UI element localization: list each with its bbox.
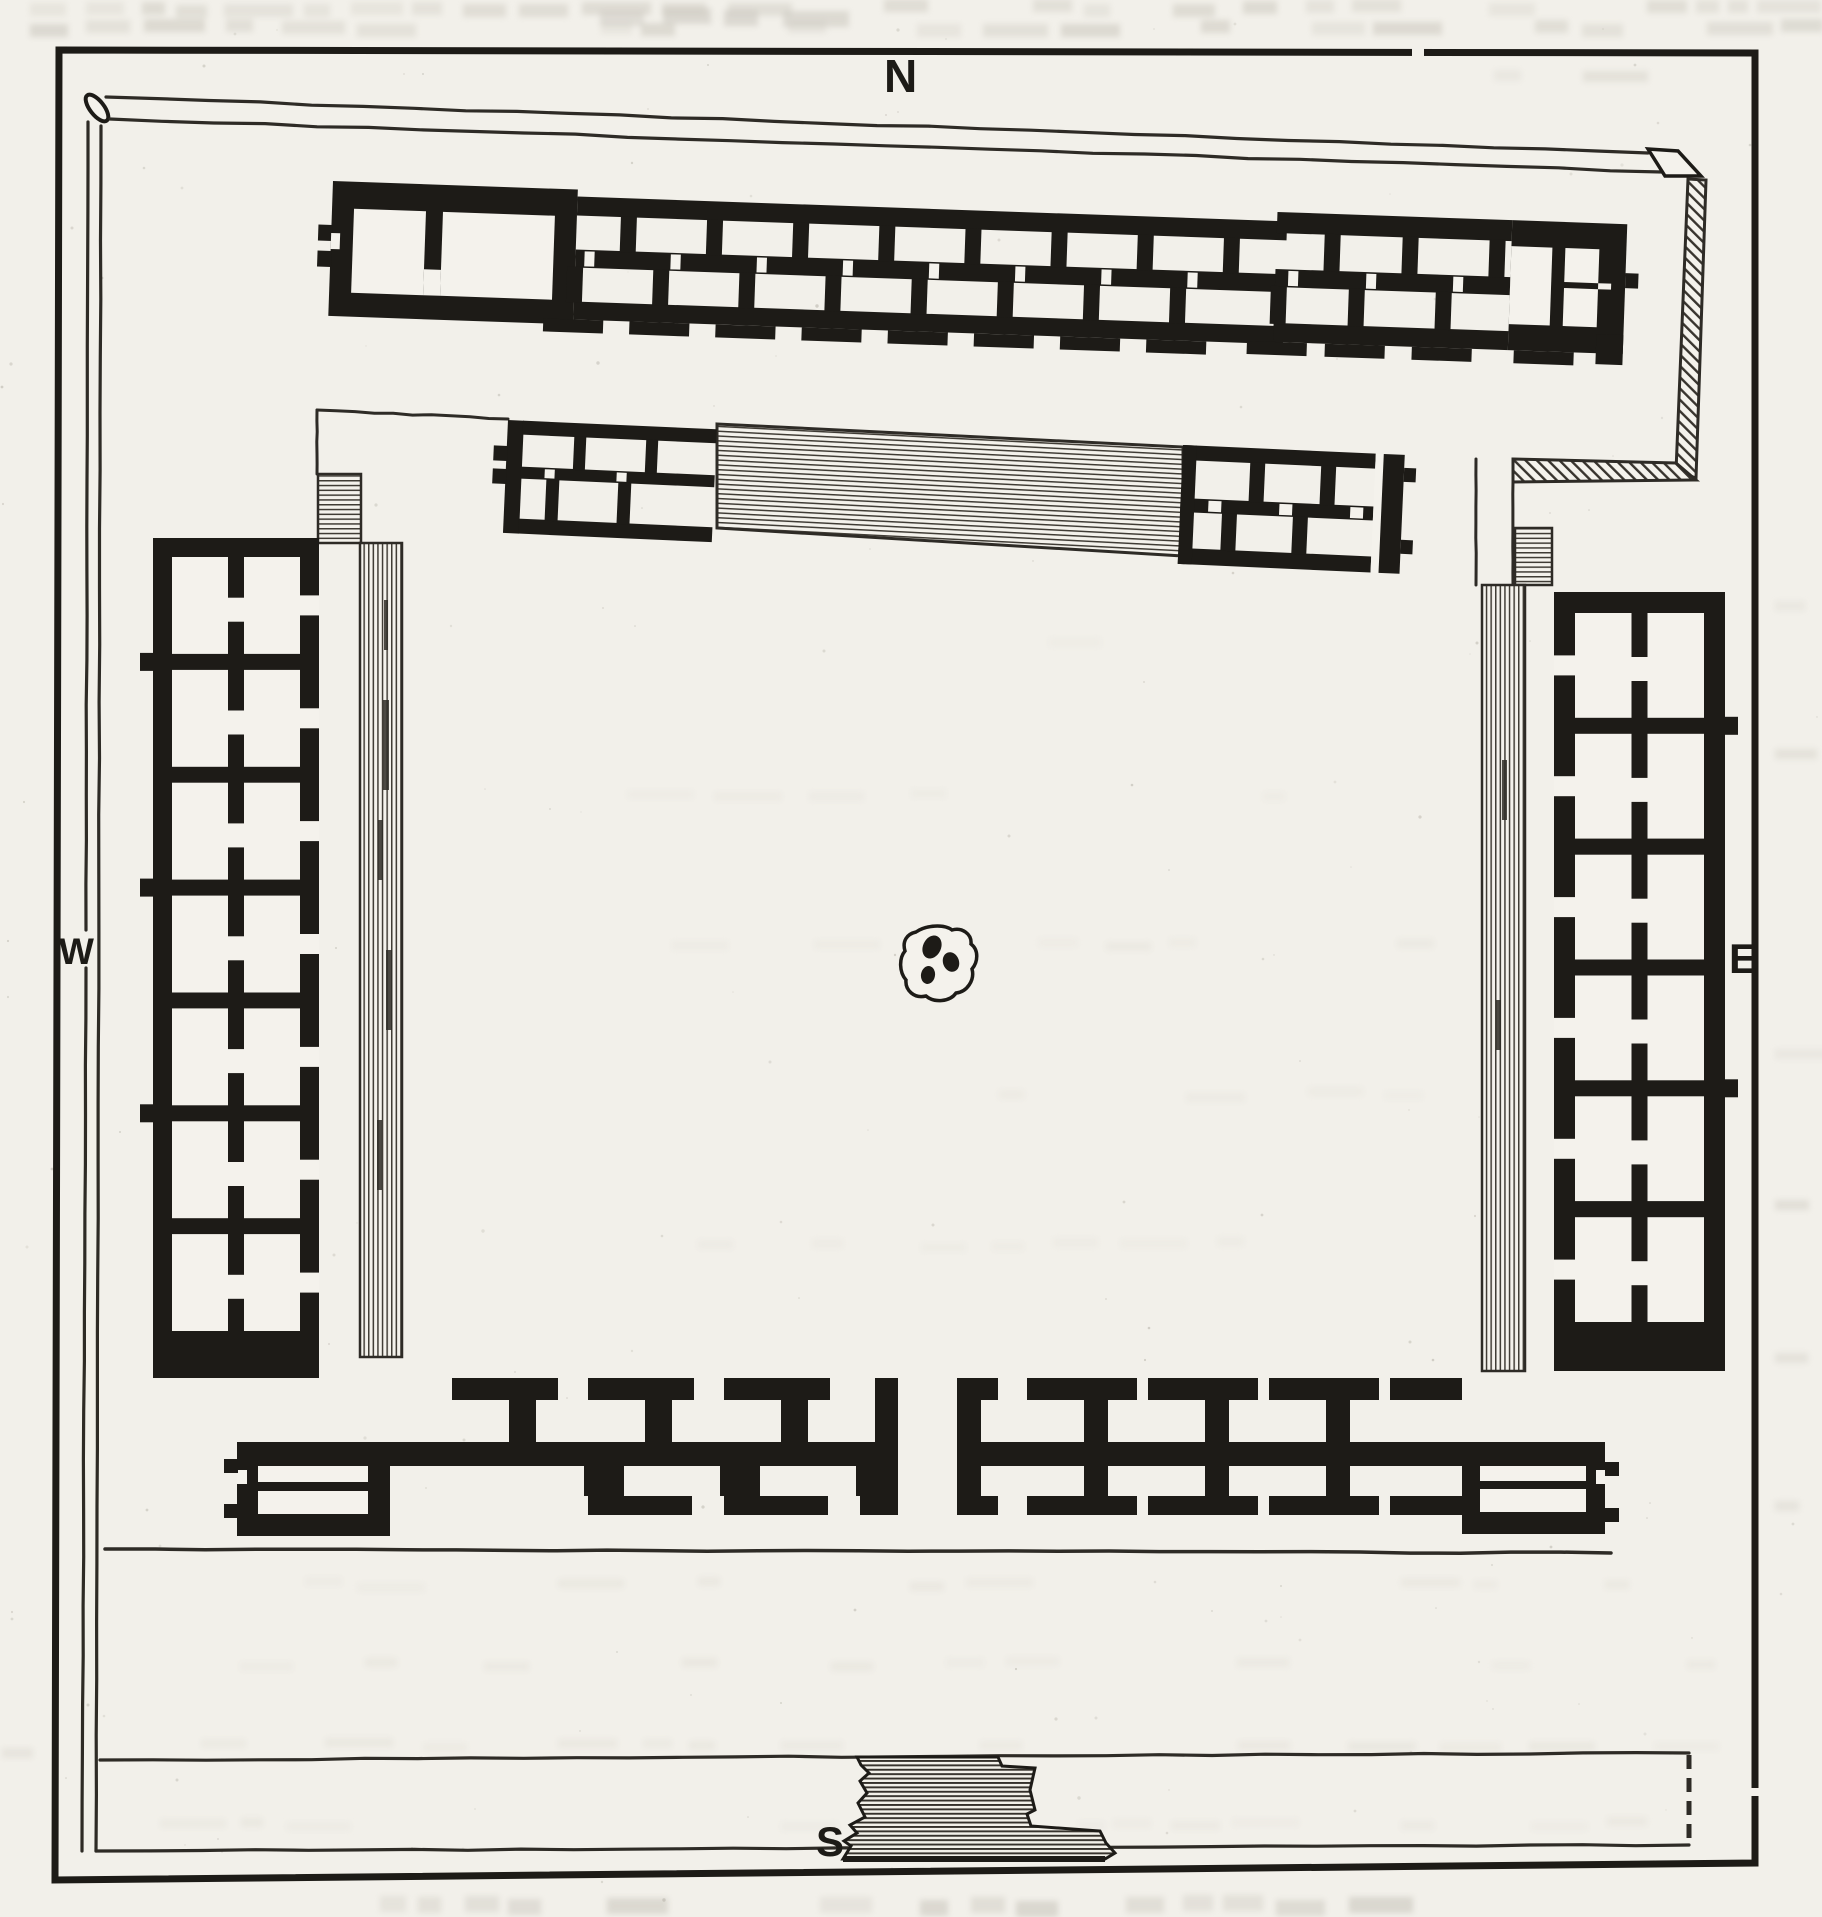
svg-text:N: N: [884, 50, 917, 102]
svg-text:S: S: [816, 1818, 844, 1865]
svg-text:E: E: [1729, 935, 1757, 982]
svg-text:W: W: [59, 931, 94, 972]
